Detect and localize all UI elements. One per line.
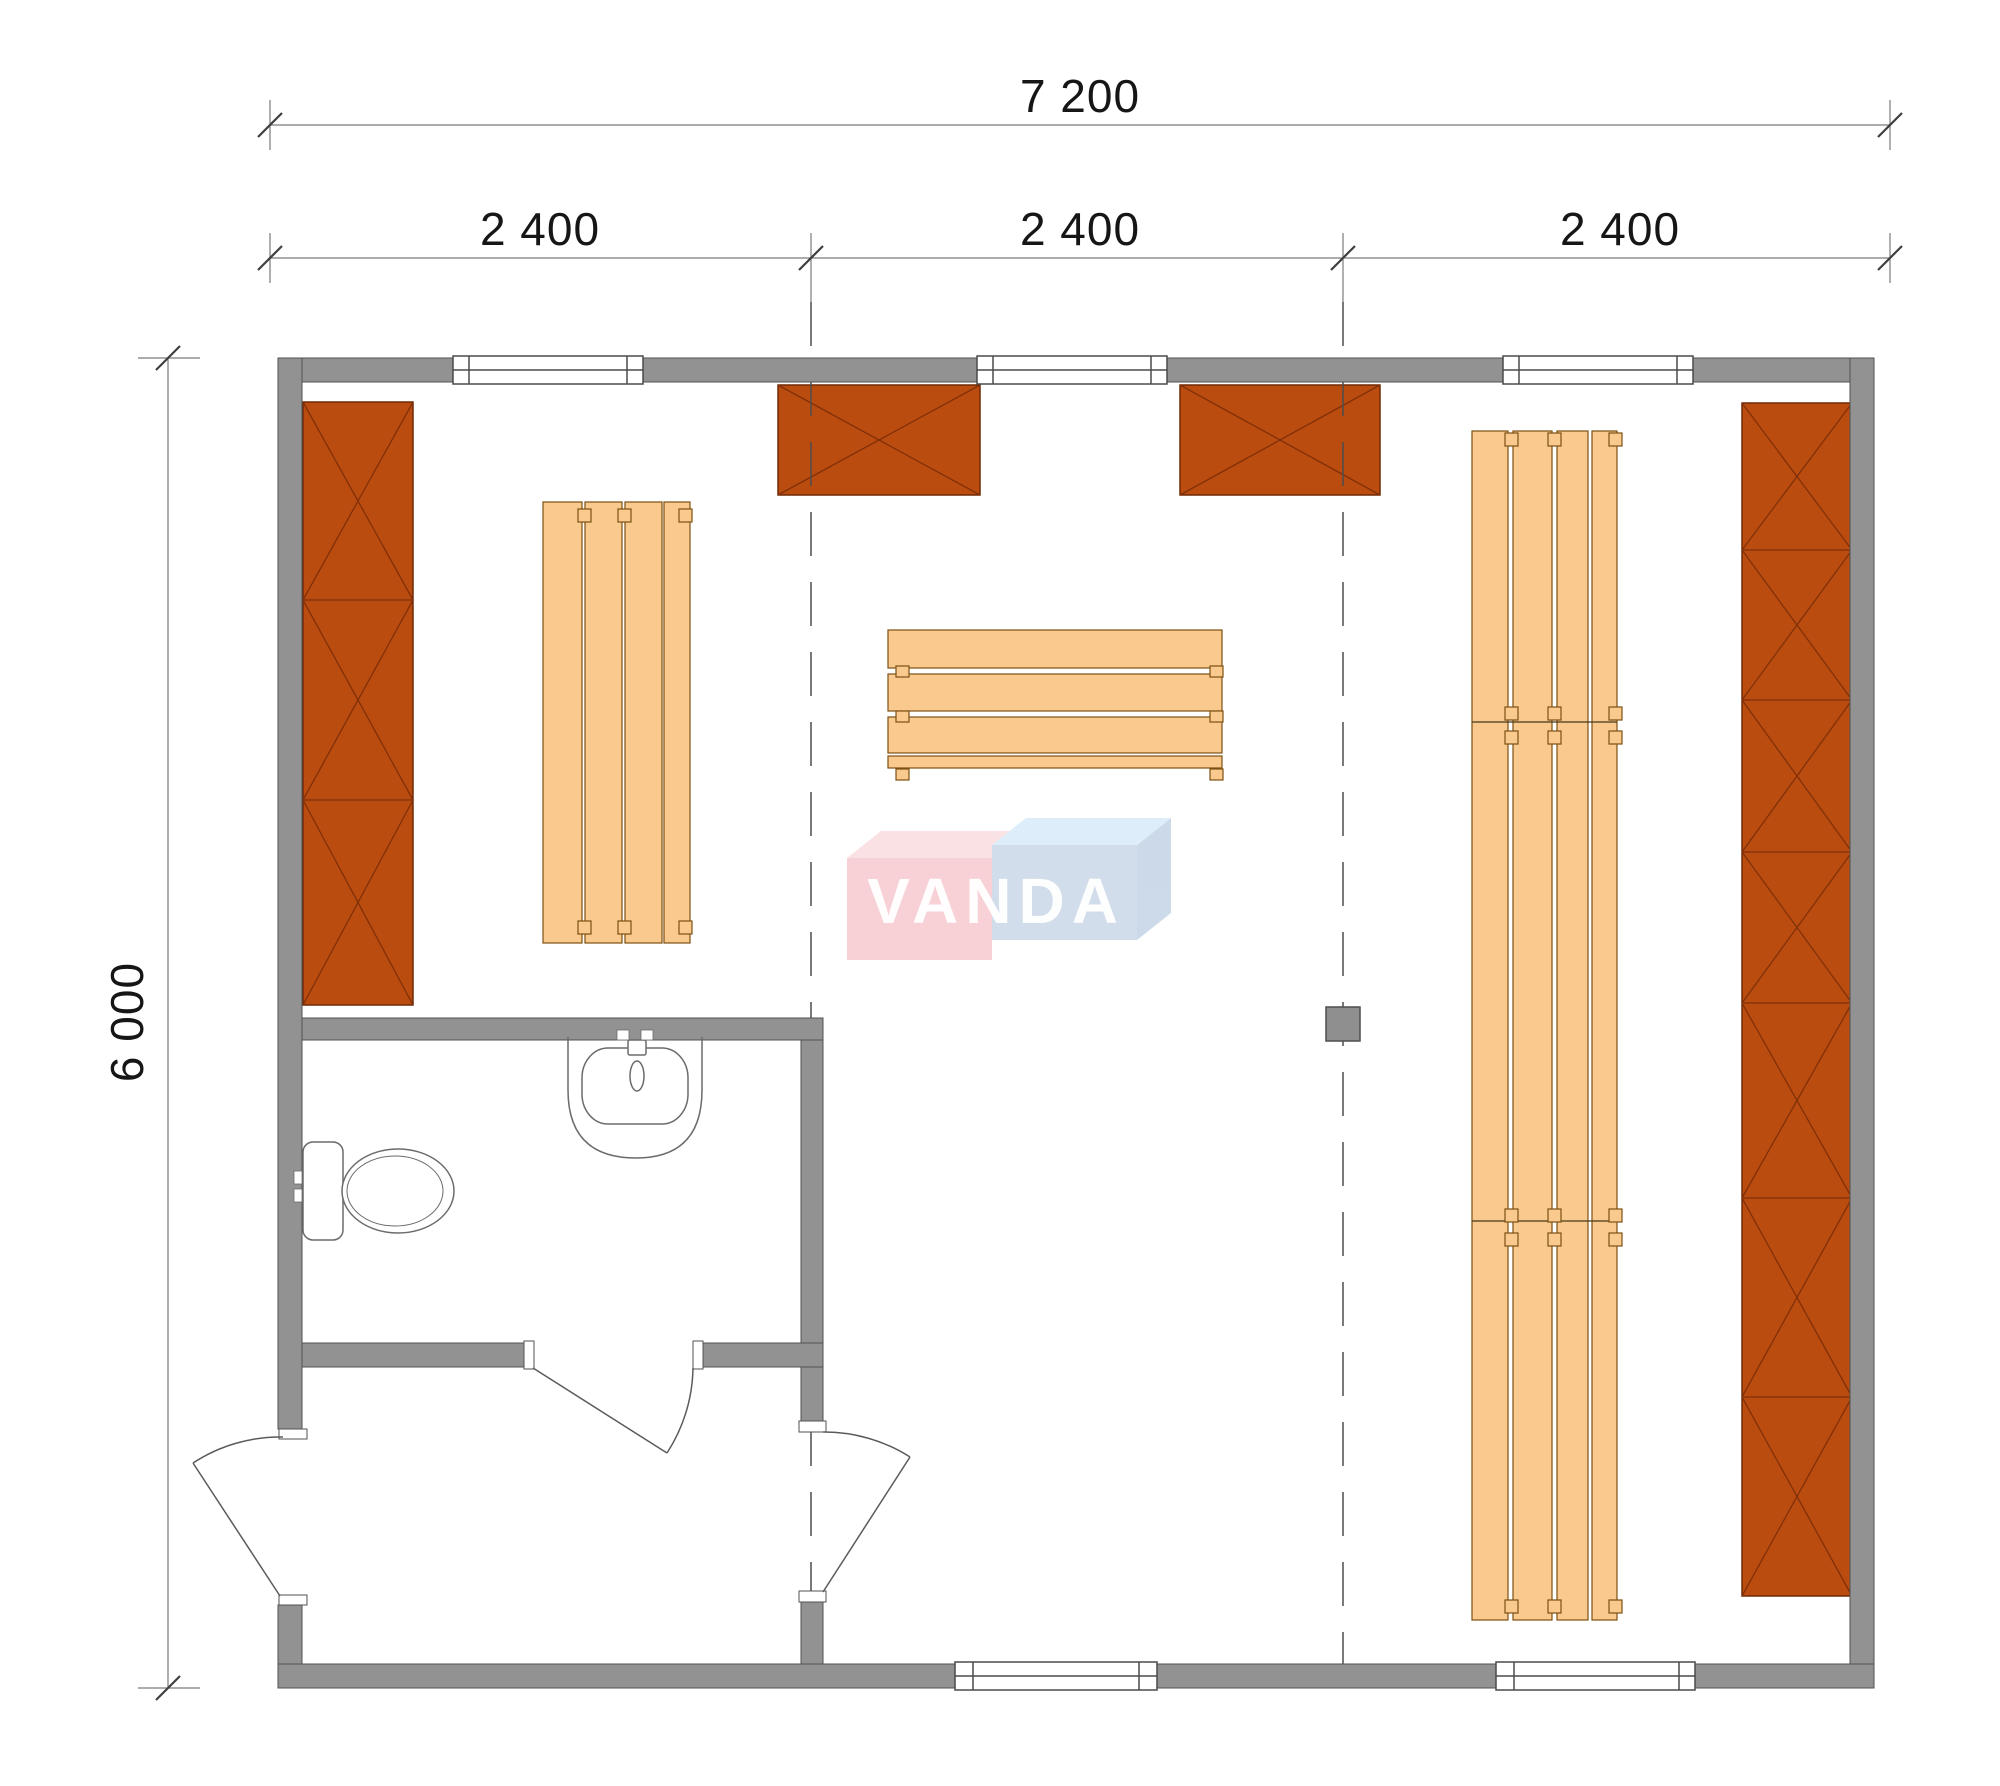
wall-cabinet-1 xyxy=(778,385,980,495)
window-top-2 xyxy=(977,356,1167,384)
dimension-label-bay-2: 2 400 xyxy=(1020,202,1140,256)
window-top-1 xyxy=(453,356,643,384)
right-wardrobe-cabinet xyxy=(1742,403,1852,1596)
hall-to-room-door xyxy=(823,1432,910,1592)
exterior-door xyxy=(193,1437,283,1596)
walls xyxy=(278,358,1874,1688)
left-wardrobe-cabinet xyxy=(303,402,413,1005)
heater-block xyxy=(1326,1007,1360,1041)
dimension-label-height: 6 000 xyxy=(100,962,154,1082)
bathroom-door xyxy=(533,1368,693,1453)
window-bottom-1 xyxy=(955,1662,1157,1690)
washbasin xyxy=(568,1030,702,1158)
floor-plan-drawing: 7 200 2 400 2 400 2 400 6 000 VANDA xyxy=(0,0,2000,1786)
dimension-label-total-width: 7 200 xyxy=(1020,69,1140,123)
partition-dashed-lines xyxy=(811,302,1343,1686)
right-bench xyxy=(1472,431,1622,1620)
toilet xyxy=(294,1142,454,1240)
wall-cabinet-2 xyxy=(1180,385,1380,495)
center-bench xyxy=(888,630,1223,780)
left-bench xyxy=(543,502,692,943)
dimension-label-bay-3: 2 400 xyxy=(1560,202,1680,256)
window-top-3 xyxy=(1503,356,1693,384)
dimension-label-bay-1: 2 400 xyxy=(480,202,600,256)
window-bottom-2 xyxy=(1496,1662,1695,1690)
vanda-logo-text: VANDA xyxy=(867,864,1125,938)
